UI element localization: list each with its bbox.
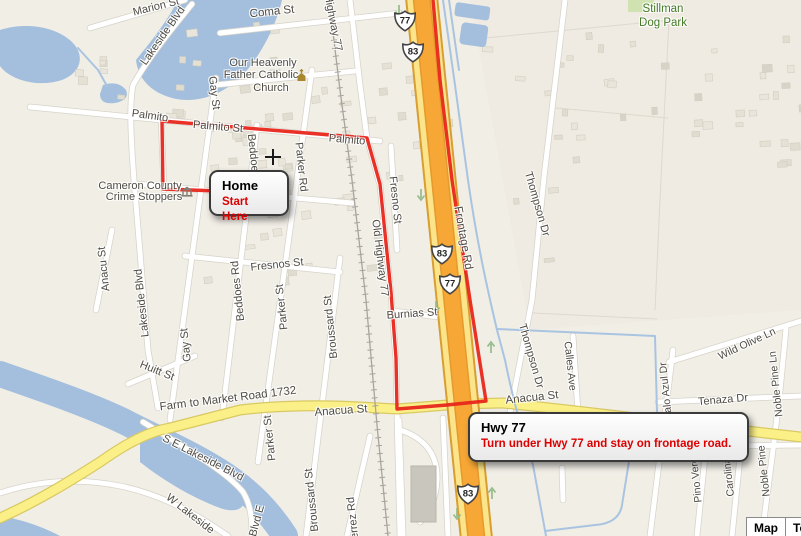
callout-hwy77-title: Hwy 77 bbox=[481, 420, 736, 435]
map-view-button[interactable]: Map bbox=[746, 517, 786, 536]
callout-home-title: Home bbox=[222, 178, 276, 193]
callout-home-subtitle: Start Here bbox=[222, 195, 276, 225]
terrain-view-button[interactable]: Te bbox=[786, 517, 801, 536]
callout-home: Home Start Here bbox=[209, 170, 289, 216]
map-canvas[interactable]: Marion StLakeside BlvdComa StHighway 77O… bbox=[0, 0, 801, 536]
callout-hwy77: Hwy 77 Turn under Hwy 77 and stay on fro… bbox=[468, 412, 749, 462]
callout-hwy77-subtitle: Turn under Hwy 77 and stay on frontage r… bbox=[481, 437, 736, 452]
map-type-control: Map Te bbox=[746, 517, 801, 536]
